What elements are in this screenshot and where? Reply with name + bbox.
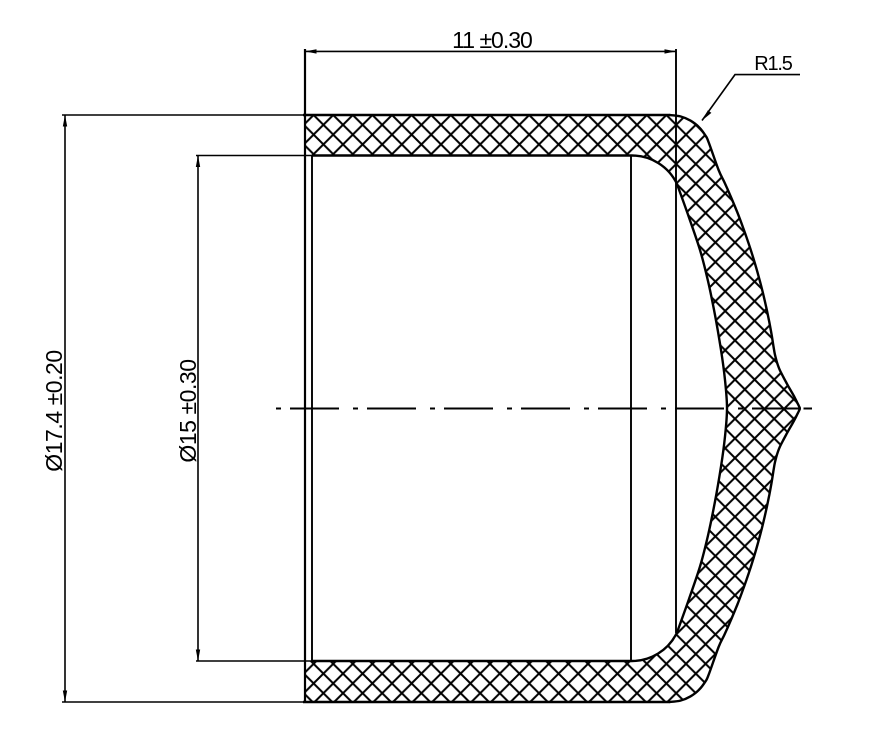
svg-text:Ø15 ±0.30: Ø15 ±0.30 bbox=[175, 359, 201, 462]
svg-text:Ø17.4 ±0.20: Ø17.4 ±0.20 bbox=[41, 350, 67, 471]
svg-text:11 ±0.30: 11 ±0.30 bbox=[452, 27, 532, 53]
svg-text:R1.5: R1.5 bbox=[754, 53, 793, 75]
